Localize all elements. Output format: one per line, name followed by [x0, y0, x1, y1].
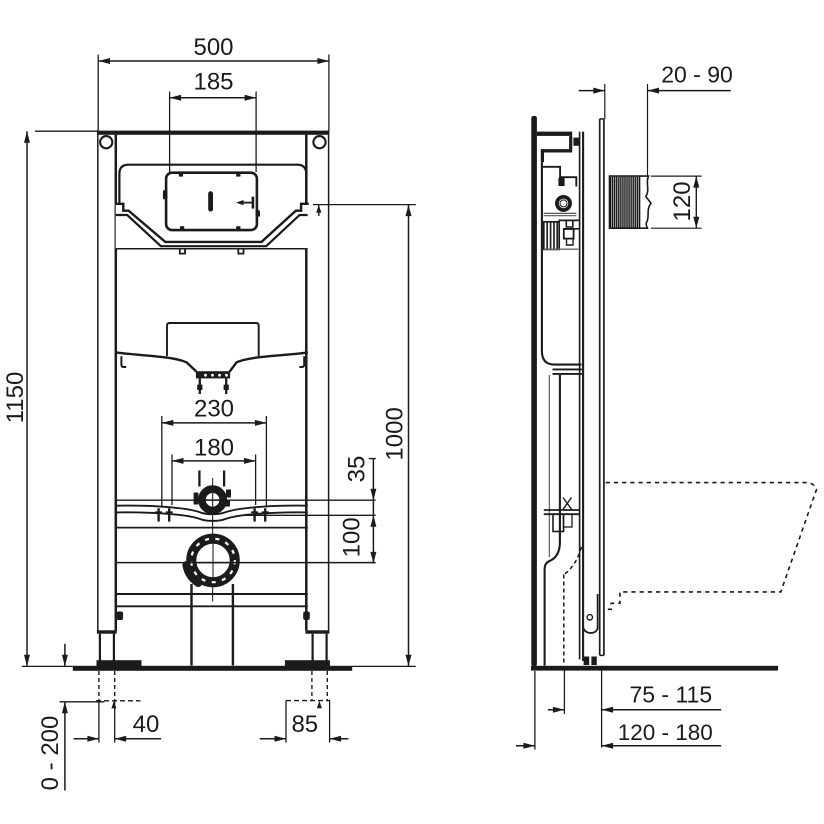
svg-text:85: 85 — [291, 711, 318, 738]
svg-text:1150: 1150 — [2, 372, 29, 424]
svg-text:120 - 180: 120 - 180 — [618, 720, 713, 745]
svg-text:185: 185 — [193, 69, 233, 96]
svg-text:40: 40 — [133, 711, 160, 738]
svg-text:1000: 1000 — [382, 407, 409, 460]
svg-text:120: 120 — [669, 181, 696, 221]
svg-text:20 - 90: 20 - 90 — [661, 62, 733, 88]
svg-text:100: 100 — [339, 517, 366, 557]
svg-text:230: 230 — [194, 395, 234, 422]
svg-text:180: 180 — [194, 434, 234, 461]
svg-text:35: 35 — [344, 456, 371, 483]
svg-text:500: 500 — [193, 34, 233, 61]
svg-text:0 - 200: 0 - 200 — [37, 716, 64, 791]
svg-text:75 - 115: 75 - 115 — [629, 682, 712, 708]
